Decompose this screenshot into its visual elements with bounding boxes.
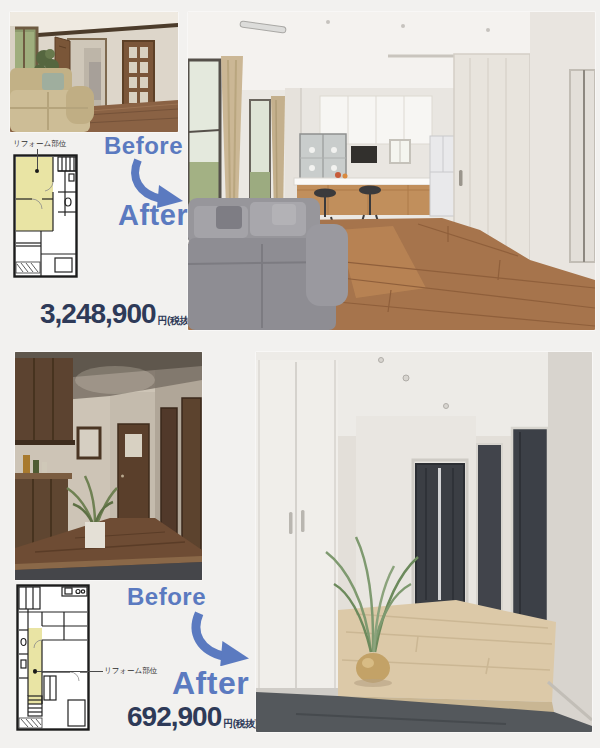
closet [256,360,338,696]
plant-pot [85,522,105,548]
after-label: After [118,201,188,230]
back-door [118,424,149,521]
curved-arrow-icon [187,611,249,666]
floorplan-hallway-drawing [16,584,90,731]
before-label: Before [127,585,206,609]
plan-note-label: リフォーム部位 [13,140,66,148]
back-door [413,460,467,606]
price-unit: 円(税抜) [158,316,192,328]
leader-line [37,671,103,672]
before-living-illustration [10,12,178,132]
fridge [430,136,457,216]
price: 3,248,900 円(税抜) [40,300,192,328]
reform-flyer-page: リフォーム部位 Before After 3,248,900 円(税抜) [0,0,600,748]
after-ldk-illustration [188,12,595,330]
after-label: After [172,667,249,699]
after-photo-ldk [188,12,595,330]
floorplan-living-drawing [13,154,78,278]
after-hallway-illustration [256,352,592,732]
plan-note-label: リフォーム部位 [104,667,157,675]
leader-dot [35,169,39,173]
leader-line [37,149,38,171]
leader-dot [33,669,37,673]
price-value: 3,248,900 [40,300,156,328]
floorplan-hallway [16,584,90,731]
before-photo-living [10,12,178,132]
before-label: Before [104,134,183,158]
price-value: 692,900 [127,703,221,731]
after-photo-hallway [256,352,592,732]
reform-area-highlight [16,157,53,231]
picture-frame [78,428,100,458]
before-hallway-illustration [15,352,202,580]
floorplan-living [13,154,78,278]
price: 692,900 円(税抜) [127,703,257,731]
upper-cabinet [15,358,75,445]
price-unit: 円(税抜) [223,719,257,731]
before-photo-hallway [15,352,202,580]
